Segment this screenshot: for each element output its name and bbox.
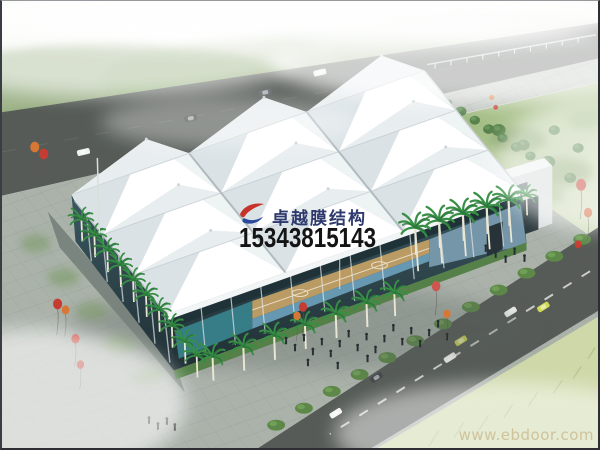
watermark-phone-number: 15343815143 <box>239 222 376 254</box>
rendering-image: 卓越膜结构 15343815143 www.ebdoor.com <box>0 0 600 450</box>
watermark-website: www.ebdoor.com <box>459 426 594 444</box>
company-logo-icon <box>239 201 266 224</box>
